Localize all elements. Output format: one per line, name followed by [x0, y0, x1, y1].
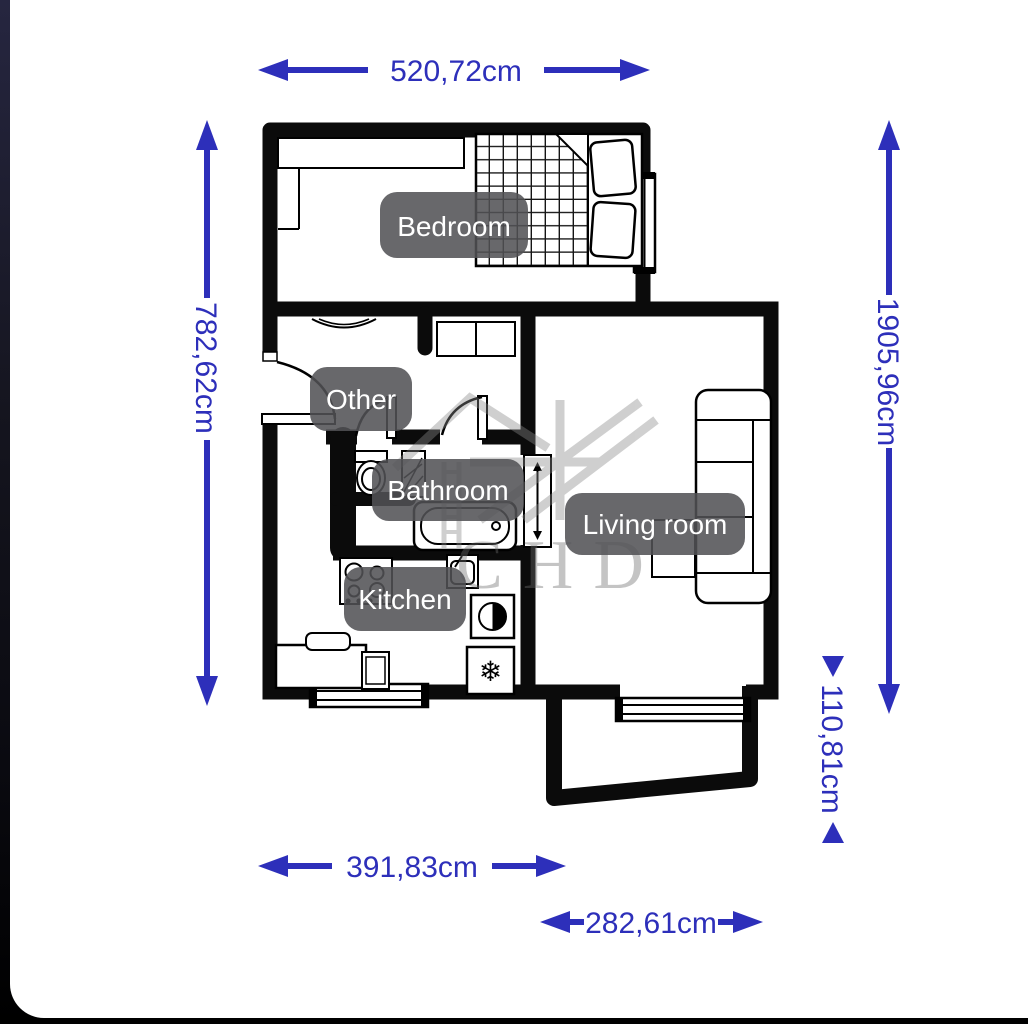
pillow — [590, 139, 637, 196]
desk — [276, 633, 389, 689]
dimension-bottom-right: 282,61cm — [540, 907, 763, 940]
room-label-bathroom: Bathroom — [372, 459, 524, 521]
dimension-right-small-label: 110,81cm — [815, 684, 848, 814]
dimension-bottom-right-label: 282,61cm — [585, 907, 717, 940]
freezer: ❄ — [467, 647, 514, 694]
room-label-bedroom-text: Bedroom — [397, 211, 511, 242]
arrow-right-icon — [620, 59, 650, 81]
room-label-other: Other — [310, 367, 412, 431]
floorplan-viewer: { "page": { "background_dark": "#14141f"… — [0, 0, 1028, 1024]
dimension-top-label: 520,72cm — [390, 55, 522, 88]
arrow-left-icon — [258, 855, 288, 877]
arrow-down-icon — [822, 656, 844, 677]
arrow-down-icon — [196, 676, 218, 706]
arrow-up-icon — [196, 120, 218, 150]
bedroom-opening — [312, 319, 376, 328]
snowflake-icon: ❄ — [479, 656, 502, 687]
arrow-left-icon — [540, 911, 570, 933]
dimension-left-label: 782,62cm — [189, 302, 222, 434]
dimension-right: 1905,96cm — [871, 120, 904, 714]
room-label-living-room-text: Living room — [583, 509, 728, 540]
room-label-kitchen: Kitchen — [344, 567, 466, 631]
room-label-living-room: Living room — [565, 493, 745, 555]
room-label-kitchen-text: Kitchen — [358, 584, 451, 615]
room-label-bathroom-text: Bathroom — [387, 475, 508, 506]
arrow-right-icon — [536, 855, 566, 877]
arrow-down-icon — [878, 684, 900, 714]
dimension-right-label: 1905,96cm — [871, 298, 904, 446]
room-label-other-text: Other — [326, 384, 396, 415]
pillow — [590, 202, 636, 259]
dimension-left: 782,62cm — [189, 120, 222, 706]
arrow-up-icon — [878, 120, 900, 150]
room-label-bedroom: Bedroom — [380, 192, 528, 258]
dimension-top: 520,72cm — [258, 55, 650, 88]
arrow-left-icon — [258, 59, 288, 81]
floorplan-svg: 520,72cm 782,62cm 1905,96cm 110,81cm 391… — [0, 0, 1028, 1024]
dimension-bottom-left-label: 391,83cm — [346, 851, 478, 884]
dimension-bottom-left: 391,83cm — [258, 851, 566, 884]
arrow-up-icon — [822, 822, 844, 843]
balcony-window — [616, 698, 750, 721]
chair — [306, 633, 350, 650]
dimension-right-small: 110,81cm — [815, 656, 848, 843]
hallway-closet — [437, 322, 515, 356]
arrow-right-icon — [733, 911, 763, 933]
